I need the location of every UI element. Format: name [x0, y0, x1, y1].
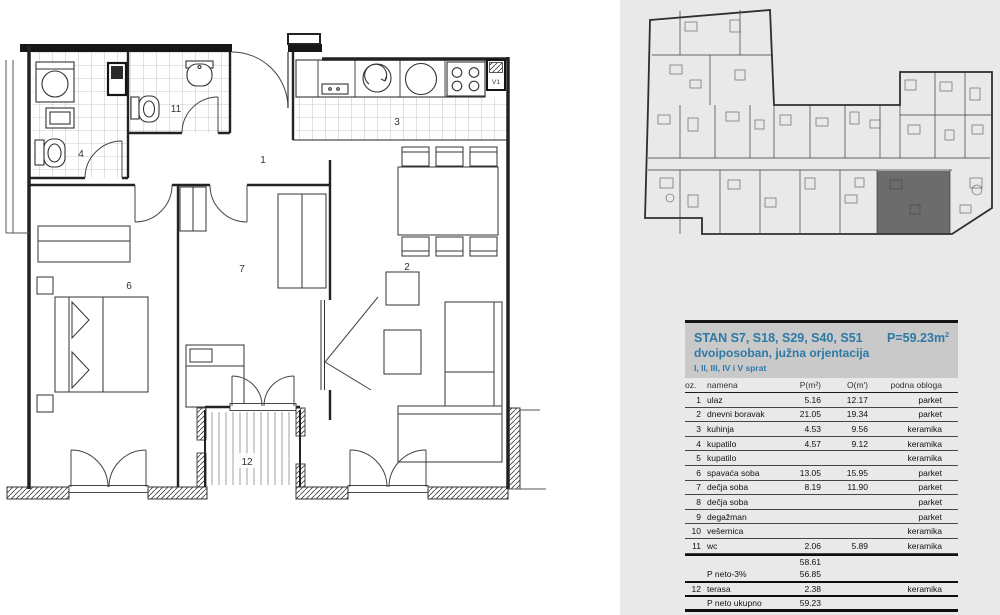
apartment-area: P=59.23m2: [887, 328, 949, 346]
col-o: O(m'): [821, 380, 868, 390]
table-row: 6 spavaća soba 13.05 15.95 parket: [685, 466, 958, 481]
table-row: 5 kupatilo keramika: [685, 451, 958, 466]
neto-label: P neto-3%: [701, 569, 793, 579]
table-row: 9 degažman parket: [685, 510, 958, 525]
highlighted-unit: [877, 171, 950, 234]
kids-room-furniture: [180, 187, 326, 407]
col-obloga: podna obloga: [868, 380, 958, 390]
subtotal-row: 58.61: [685, 554, 958, 569]
table-row: 4 kupatilo 4.57 9.12 keramika: [685, 437, 958, 452]
dining-set: [398, 147, 498, 256]
building-key-plan: [640, 0, 1000, 250]
apartment-floor-plan: V1 1 2 3 4: [0, 0, 620, 615]
total-row: P neto ukupno 59.23: [685, 597, 958, 612]
table-row: 7 dečja soba 8.19 11.90 parket: [685, 481, 958, 496]
room-label-terrace: 12: [241, 457, 253, 468]
room-label-hall: 1: [260, 155, 266, 166]
total-label: P neto ukupno: [701, 598, 793, 608]
bedroom-furniture: [37, 226, 148, 412]
room-label-living: 2: [404, 262, 410, 273]
neto-value: 56.85: [793, 569, 821, 579]
table-row: 11 wc 2.06 5.89 keramika: [685, 539, 958, 554]
kitchen-fixtures: [296, 60, 485, 97]
table-row: 1 ulaz 5.16 12.17 parket: [685, 393, 958, 408]
french-door-sills: [69, 404, 428, 493]
apartment-floors: I, II, III, IV i V sprat: [694, 362, 949, 374]
room-label-kids: 7: [239, 264, 245, 275]
vent-label: V1: [492, 79, 500, 86]
table-row: 2 dnevni boravak 21.05 19.34 parket: [685, 408, 958, 423]
apartment-info: STAN S7, S18, S29, S40, S51 P=59.23m2 dv…: [685, 320, 958, 612]
neto-row: P neto-3% 56.85: [685, 568, 958, 583]
room-label-kitchen: 3: [394, 117, 400, 128]
apartment-title: STAN S7, S18, S29, S40, S51: [694, 330, 863, 346]
room-label-bath: 4: [78, 149, 84, 160]
living-room-furniture: [321, 272, 502, 462]
terrace-row: 12 terasa 2.38 keramika: [685, 583, 958, 598]
terrace-deck: [197, 408, 305, 487]
table-header-row: oz. namena P(m²) O(m') podna obloga: [685, 378, 958, 393]
total-value: 59.23: [793, 598, 821, 608]
col-oz: oz.: [685, 380, 701, 390]
apartment-subtitle: dvoiposoban, južna orjentacija: [694, 346, 949, 361]
room-label-wc: 11: [171, 104, 182, 115]
rooms-table: oz. namena P(m²) O(m') podna obloga 1 ul…: [685, 378, 958, 612]
col-namena: namena: [701, 380, 793, 390]
table-row: 8 dečja soba parket: [685, 495, 958, 510]
page: V1 1 2 3 4: [0, 0, 1000, 615]
col-p: P(m²): [793, 380, 821, 390]
room-label-bedroom: 6: [126, 281, 132, 292]
table-row: 10 vešernica keramika: [685, 524, 958, 539]
table-row: 3 kuhinja 4.53 9.56 keramika: [685, 422, 958, 437]
shaft-box: [108, 63, 126, 95]
subtotal-value: 58.61: [793, 557, 821, 567]
apartment-header: STAN S7, S18, S29, S40, S51 P=59.23m2 dv…: [685, 320, 958, 378]
vent-box: V1: [487, 60, 505, 90]
